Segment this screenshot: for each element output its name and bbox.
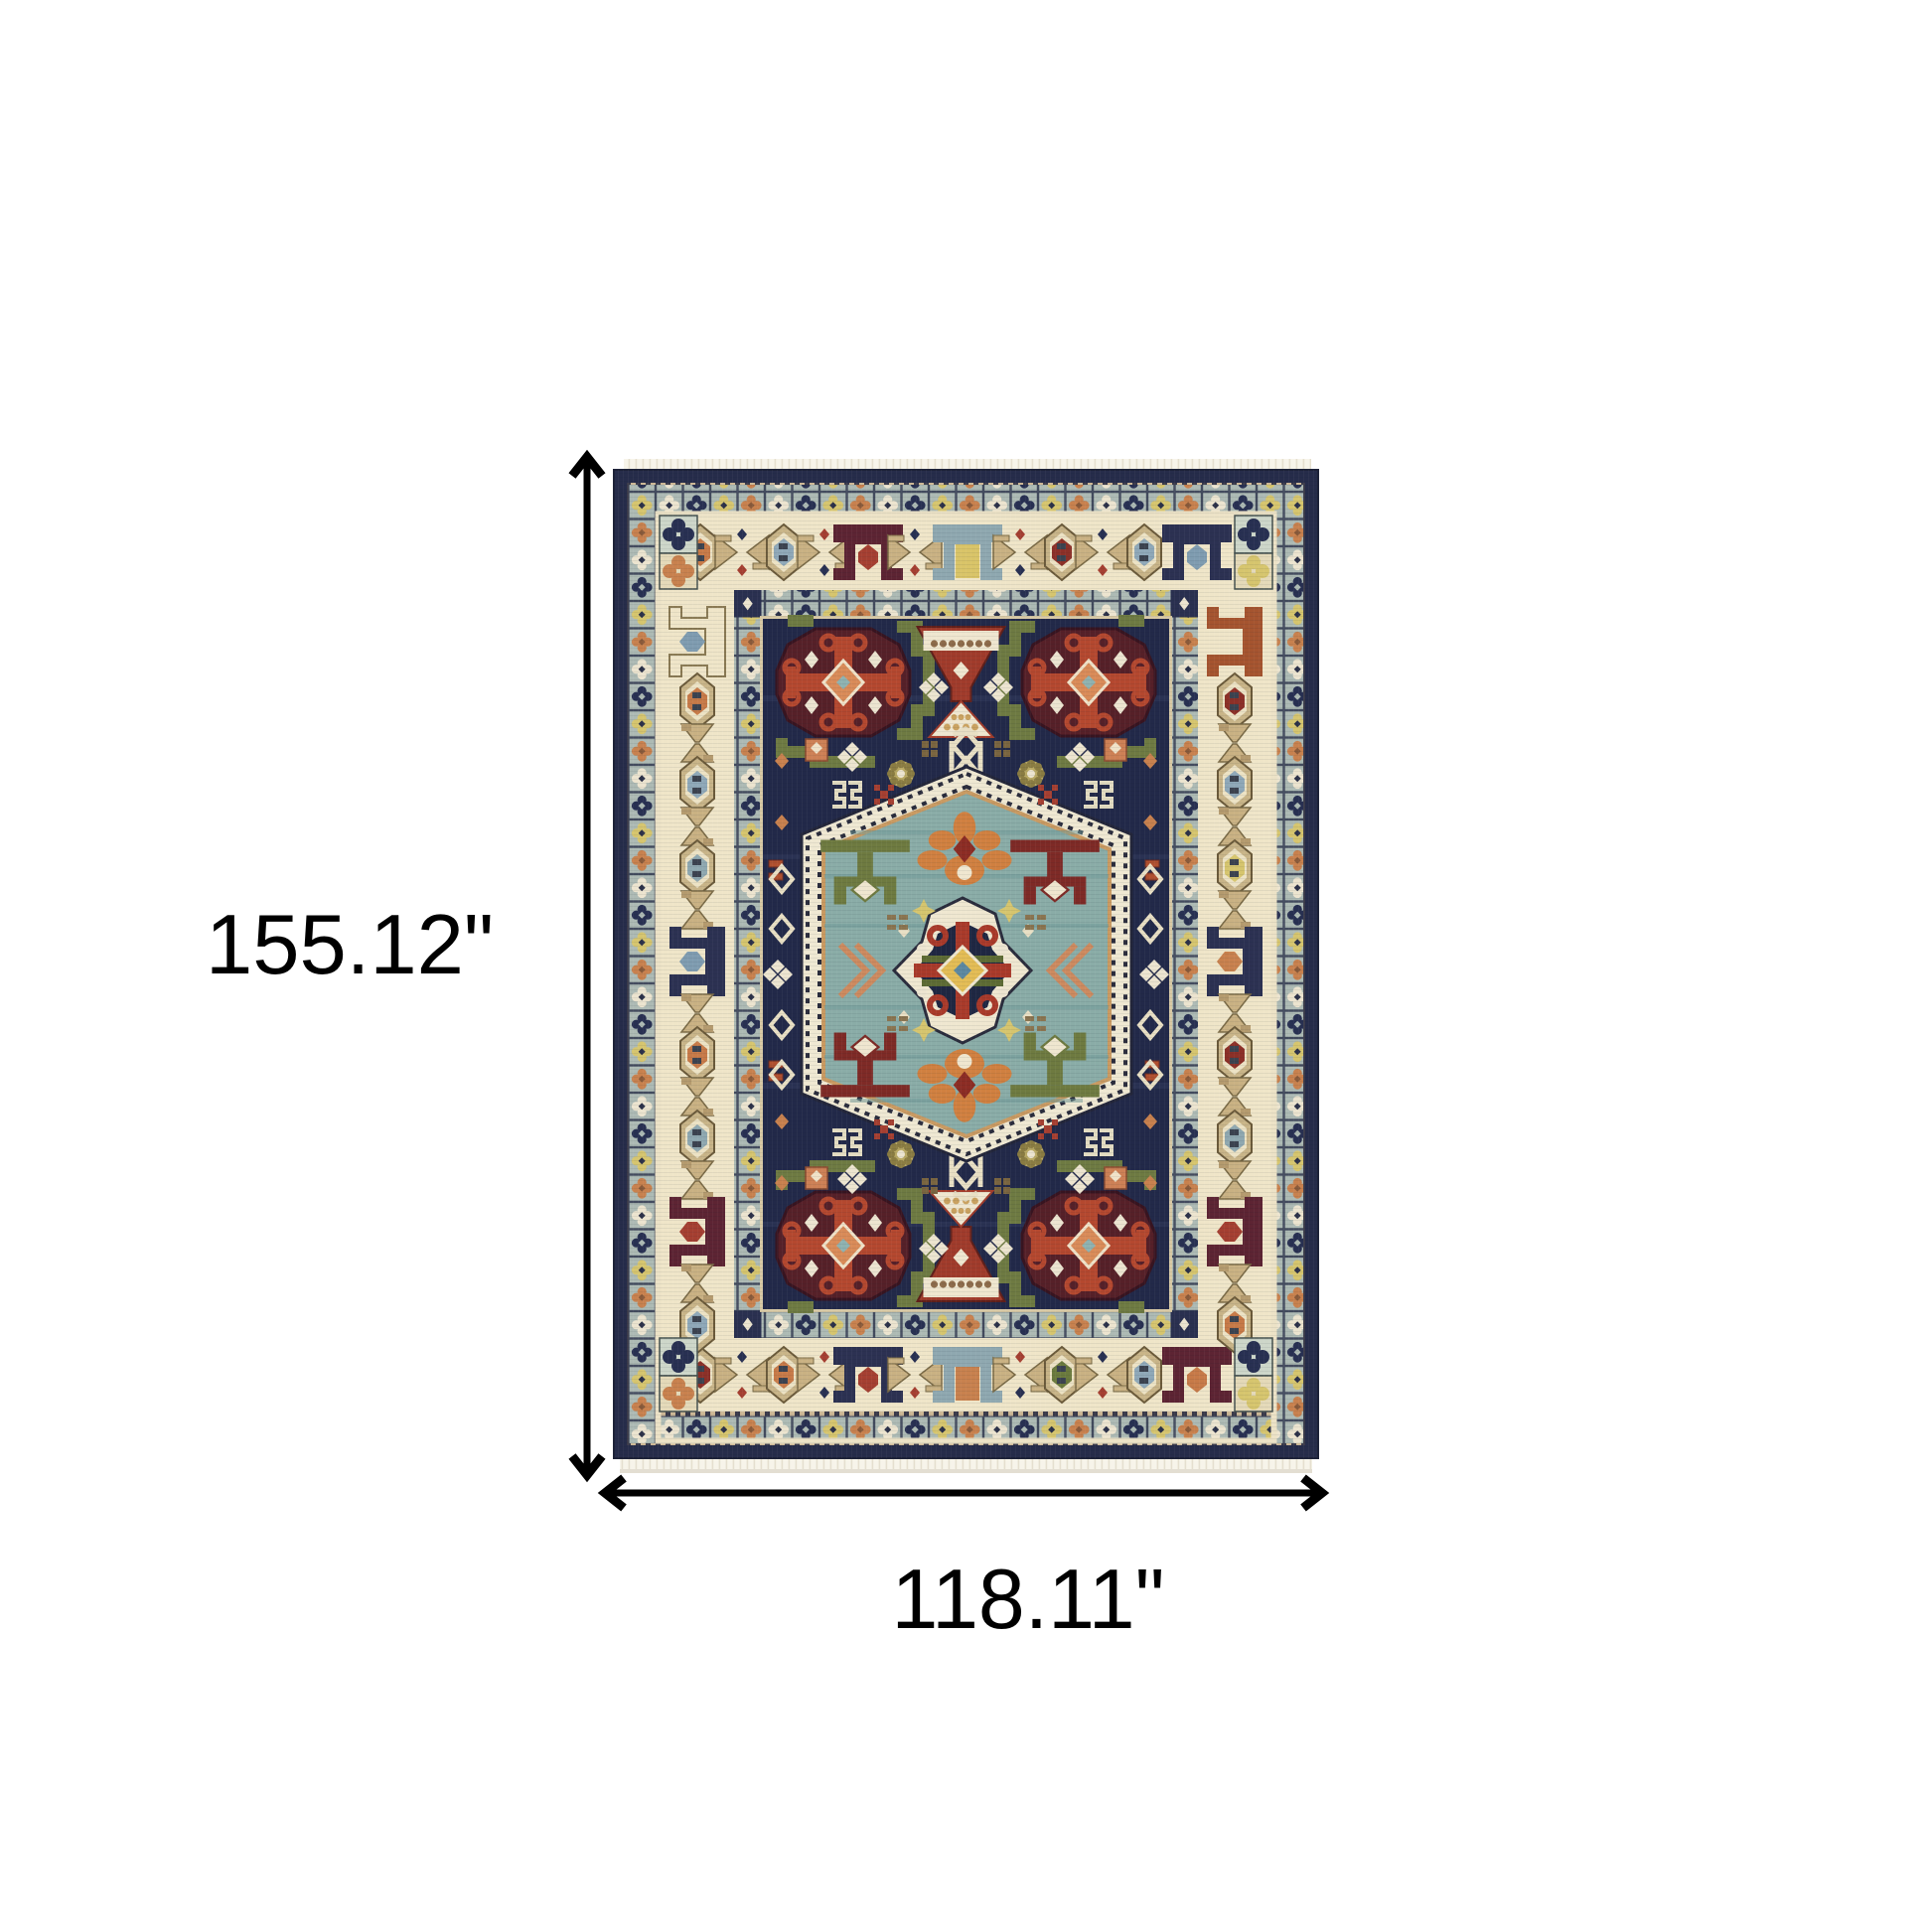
svg-text:155.12": 155.12" bbox=[206, 898, 494, 992]
svg-text:118.11": 118.11" bbox=[892, 1553, 1165, 1647]
